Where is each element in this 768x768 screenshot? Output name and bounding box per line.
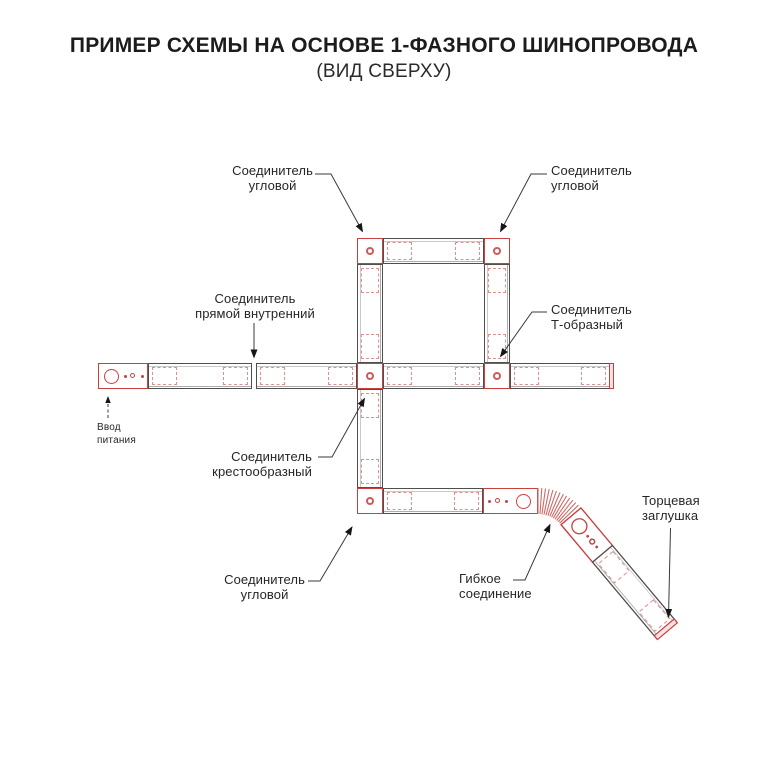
contact-zone-dashes bbox=[361, 268, 379, 293]
feed-dot-icon bbox=[141, 375, 144, 378]
track-segment-mid-c bbox=[383, 363, 484, 389]
end-cap-right bbox=[609, 363, 614, 389]
contact-zone-dashes bbox=[488, 268, 506, 293]
label-t-connector: Соединитель Т-образный bbox=[551, 302, 632, 332]
connector-hole-icon bbox=[493, 247, 501, 255]
leader-corner-top-left bbox=[315, 174, 363, 232]
power-feed-box bbox=[98, 363, 148, 389]
contact-zone-dashes bbox=[455, 242, 480, 260]
end-cap-diagonal bbox=[654, 619, 677, 640]
feed-dot-icon bbox=[505, 500, 508, 503]
t-connector bbox=[484, 363, 510, 389]
feed-circle-icon bbox=[516, 494, 531, 509]
contact-zone-dashes bbox=[514, 367, 539, 385]
label-end-cap: Торцевая заглушка bbox=[642, 493, 700, 523]
track-segment-left-upper bbox=[357, 264, 383, 363]
contact-zone-dashes bbox=[387, 367, 412, 385]
connector-hole-icon bbox=[366, 497, 374, 505]
cross-connector bbox=[357, 363, 383, 389]
track-segment-top bbox=[383, 238, 484, 264]
busbar-scheme-diagram: Соединитель угловой Соединитель угловой … bbox=[0, 0, 768, 768]
feed-ringdot-icon bbox=[589, 538, 596, 545]
track-segment-mid-b bbox=[256, 363, 357, 389]
feed-dot-icon bbox=[595, 545, 599, 549]
contact-zone-dashes bbox=[223, 367, 248, 385]
flex-diagonal-track bbox=[561, 508, 677, 640]
leader-corner-bottom bbox=[308, 527, 352, 581]
connector-hole-icon bbox=[493, 372, 501, 380]
feed-dot-icon bbox=[124, 375, 127, 378]
label-power-input: Ввод питания bbox=[97, 422, 136, 447]
contact-zone-dashes bbox=[488, 334, 506, 359]
flex-connector-end-box-diagonal bbox=[561, 508, 612, 562]
contact-zone-dashes bbox=[260, 367, 285, 385]
contact-zone-dashes bbox=[581, 367, 606, 385]
contact-zone-dashes bbox=[454, 492, 479, 510]
feed-circle-icon bbox=[104, 369, 119, 384]
leader-corner-top-right bbox=[501, 174, 548, 232]
corner-connector-top-left bbox=[357, 238, 383, 264]
feed-circle-icon bbox=[569, 516, 590, 537]
track-segment-mid-a bbox=[148, 363, 252, 389]
track-segment-mid-d bbox=[510, 363, 610, 389]
track-segment-right-upper bbox=[484, 264, 510, 363]
track-segment-diagonal bbox=[593, 545, 677, 638]
corner-connector-top-right bbox=[484, 238, 510, 264]
label-cross-connector: Соединитель крестообразный bbox=[212, 449, 312, 479]
corner-connector-bottom bbox=[357, 488, 383, 514]
page: ПРИМЕР СХЕМЫ НА ОСНОВЕ 1-ФАЗНОГО ШИНОПРО… bbox=[0, 0, 768, 768]
contact-zone-dashes bbox=[152, 367, 177, 385]
label-corner-connector-top-left: Соединитель угловой bbox=[232, 163, 313, 193]
flex-connector-end-box bbox=[483, 488, 538, 514]
contact-zone-dashes bbox=[598, 552, 629, 583]
contact-zone-dashes bbox=[455, 367, 480, 385]
contact-zone-dashes bbox=[361, 334, 379, 359]
flex-corrugation bbox=[538, 488, 581, 525]
feed-ringdot-icon bbox=[495, 498, 500, 503]
label-corner-connector-bottom: Соединитель угловой bbox=[224, 572, 305, 602]
label-straight-internal-connector: Соединитель прямой внутренний bbox=[150, 291, 360, 321]
feed-ringdot-icon bbox=[130, 373, 135, 378]
contact-zone-dashes bbox=[639, 600, 670, 631]
leader-end-cap bbox=[669, 528, 671, 617]
track-segment-bottom bbox=[383, 488, 483, 514]
contact-zone-dashes bbox=[361, 459, 379, 484]
track-segment-left-lower bbox=[357, 389, 383, 488]
label-flexible-connection: Гибкое соединение bbox=[459, 571, 532, 601]
feed-dot-icon bbox=[586, 534, 590, 538]
connector-hole-icon bbox=[366, 372, 374, 380]
label-corner-connector-top-right: Соединитель угловой bbox=[551, 163, 632, 193]
contact-zone-dashes bbox=[328, 367, 353, 385]
contact-zone-dashes bbox=[387, 492, 412, 510]
connector-hole-icon bbox=[366, 247, 374, 255]
contact-zone-dashes bbox=[387, 242, 412, 260]
contact-zone-dashes bbox=[361, 393, 379, 418]
feed-dot-icon bbox=[488, 500, 491, 503]
